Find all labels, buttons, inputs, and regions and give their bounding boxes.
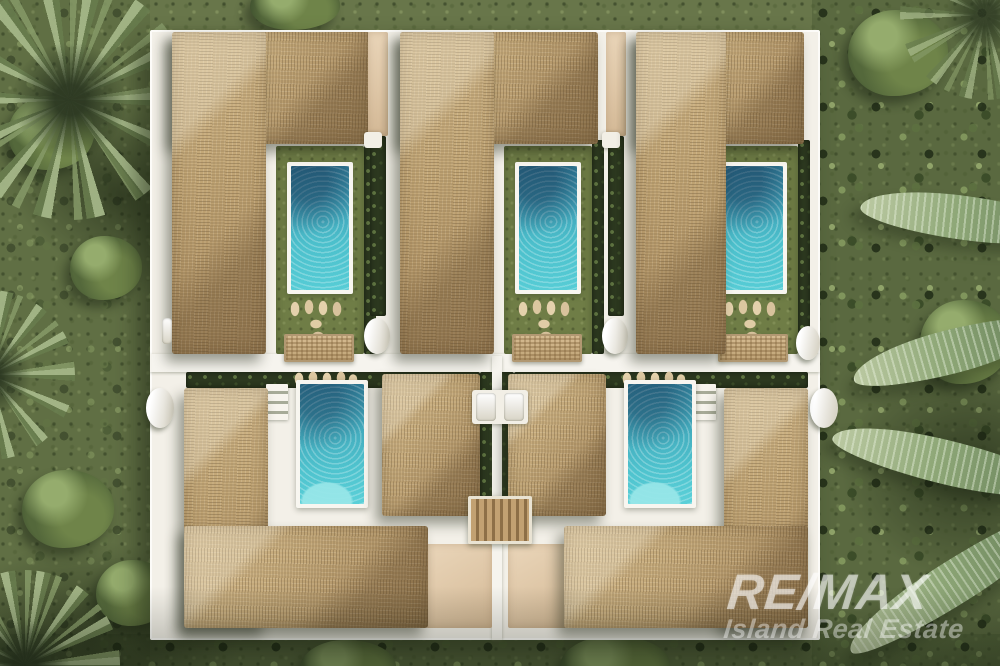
side-hedge (798, 140, 810, 354)
thatched-roof-bottom-wing (564, 526, 808, 628)
swimming-pool (287, 162, 353, 294)
ac-unit (504, 393, 524, 421)
swimming-pool (296, 380, 368, 508)
entry-steps (266, 384, 288, 420)
water-tank (796, 326, 820, 360)
sand-patio (426, 544, 492, 628)
pool-water (725, 166, 783, 290)
thatched-roof-side-wing (172, 32, 266, 354)
rattan-daybed (284, 334, 354, 362)
pool-water (291, 166, 349, 290)
swimming-pool (721, 162, 787, 294)
water-tank (364, 318, 390, 354)
side-yard-hedge (370, 136, 386, 316)
water-tank (146, 388, 174, 428)
wall-utility-box (162, 318, 172, 344)
sand-side-yard (606, 32, 626, 136)
side-yard-hedge (608, 136, 624, 316)
ac-pad (472, 390, 528, 424)
thatched-roof-side-wing (400, 32, 494, 354)
rattan-daybed (718, 334, 788, 362)
villa-compound (150, 30, 820, 640)
rattan-daybed (512, 334, 582, 362)
thatched-roof-annex (382, 374, 480, 516)
pool-water (300, 384, 364, 504)
garden-courtyard (276, 146, 364, 354)
pool-water (628, 384, 692, 504)
sand-side-yard (368, 32, 388, 136)
villa-unit-3 (626, 30, 812, 356)
villa-unit-4 (162, 372, 492, 628)
side-yard-strip (606, 30, 626, 356)
villa-unit-2 (388, 30, 606, 356)
villa-unit-5 (502, 372, 822, 628)
water-tank (602, 318, 628, 354)
villa-unit-1 (160, 30, 378, 356)
pool-water (519, 166, 577, 290)
garden-courtyard (504, 146, 592, 354)
ac-pad (364, 132, 382, 148)
thatched-roof-bottom-wing (184, 526, 428, 628)
swimming-pool (624, 380, 696, 508)
ac-pad (602, 132, 620, 148)
aerial-render-scene: RE/MAX Island Real Estate (0, 0, 1000, 666)
side-yard-strip (368, 30, 388, 356)
ac-unit (476, 393, 496, 421)
entry-steps (694, 384, 716, 420)
side-hedge (592, 140, 604, 354)
swimming-pool (515, 162, 581, 294)
thatched-roof-side-wing (636, 32, 726, 354)
wooden-gate-pergola (468, 496, 532, 544)
water-tank (810, 388, 838, 428)
